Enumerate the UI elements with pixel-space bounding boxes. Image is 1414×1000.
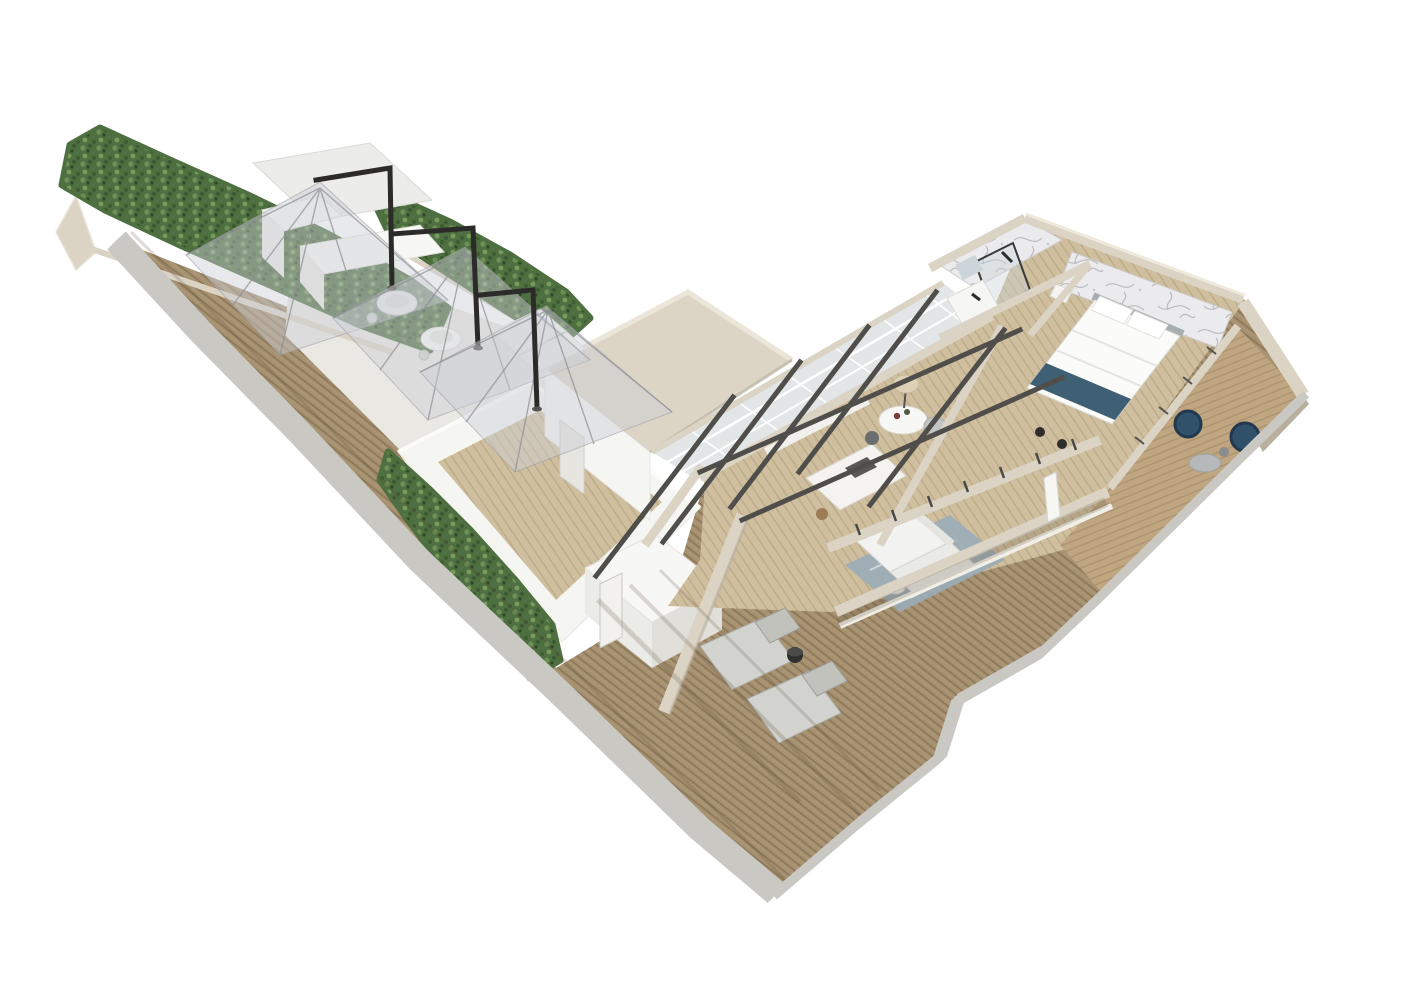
table-plant (904, 409, 910, 415)
umbrella-3-base (532, 407, 542, 412)
render-canvas: Aerial 3D cutaway rendering of a penthou… (0, 0, 1414, 1000)
table-vase (894, 413, 900, 419)
balcony-pouf (1189, 454, 1221, 472)
lounger-side-table-top (787, 648, 803, 657)
balcony-side-table (1219, 447, 1229, 457)
dining-chair (865, 431, 879, 445)
dining-table (879, 406, 927, 434)
floorplan-3d-render: Aerial 3D cutaway rendering of a penthou… (0, 0, 1414, 1000)
planter-wall-tip (56, 196, 96, 270)
bar-stool (816, 508, 828, 520)
bed-foot-stool-2 (1057, 439, 1067, 449)
bed-foot-stool-1 (1035, 427, 1045, 437)
rattan-chair-1 (1175, 411, 1201, 437)
